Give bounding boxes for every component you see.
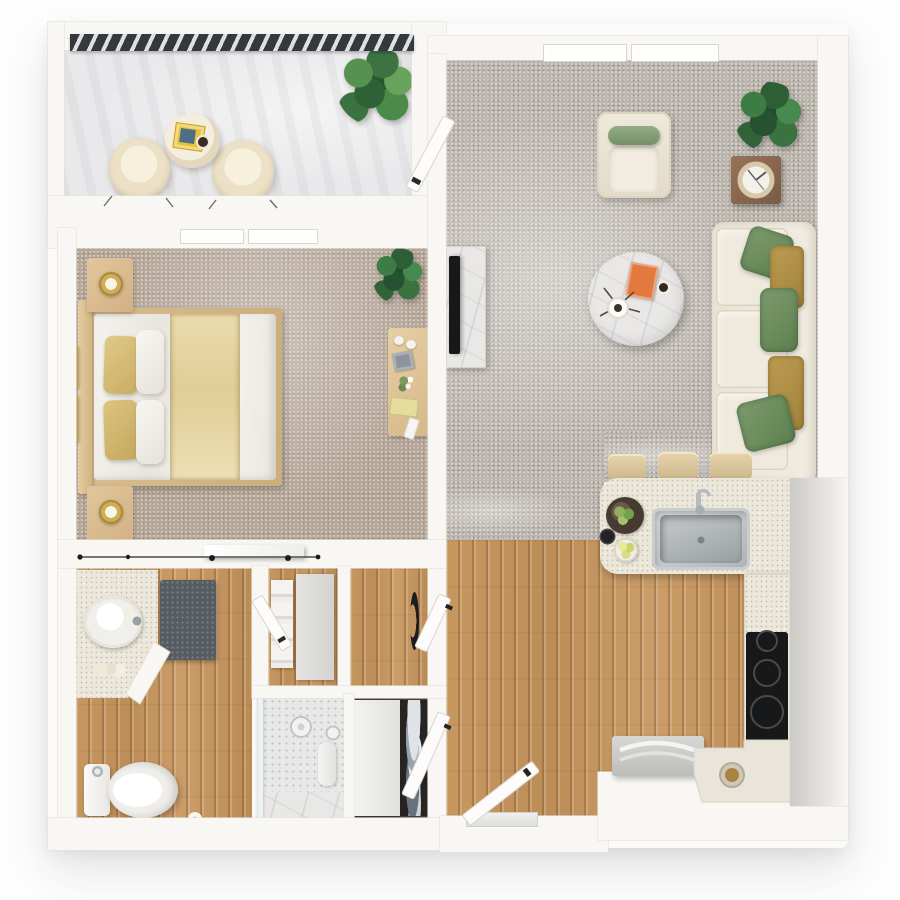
- shower-head: [291, 717, 340, 740]
- hall-door-upper: [415, 594, 456, 654]
- chair-legs: [104, 196, 277, 209]
- entry-door: [462, 761, 539, 825]
- vanity-faucet: [133, 617, 142, 626]
- bathroom-door: [252, 595, 292, 651]
- slider-roller: [126, 555, 130, 559]
- vanity-angled-wall: [126, 642, 170, 704]
- sink-drain: [698, 537, 705, 544]
- cooktop-burners: [751, 631, 783, 728]
- corner-counter-bowl-contents: [725, 768, 739, 782]
- slider-roller: [77, 554, 82, 559]
- floorplan-scene: [0, 0, 900, 900]
- detail-overlay: [0, 0, 900, 900]
- refrigerator-handles: [620, 743, 694, 760]
- coffee-table-vase: [600, 288, 640, 318]
- slider-roller: [209, 555, 215, 561]
- hall-door-lower: [402, 712, 455, 802]
- slider-roller: [316, 555, 321, 560]
- balcony-door-open: [406, 116, 455, 193]
- island-faucet: [696, 491, 711, 515]
- side-table-clock: [740, 164, 772, 196]
- slider-roller: [285, 555, 291, 561]
